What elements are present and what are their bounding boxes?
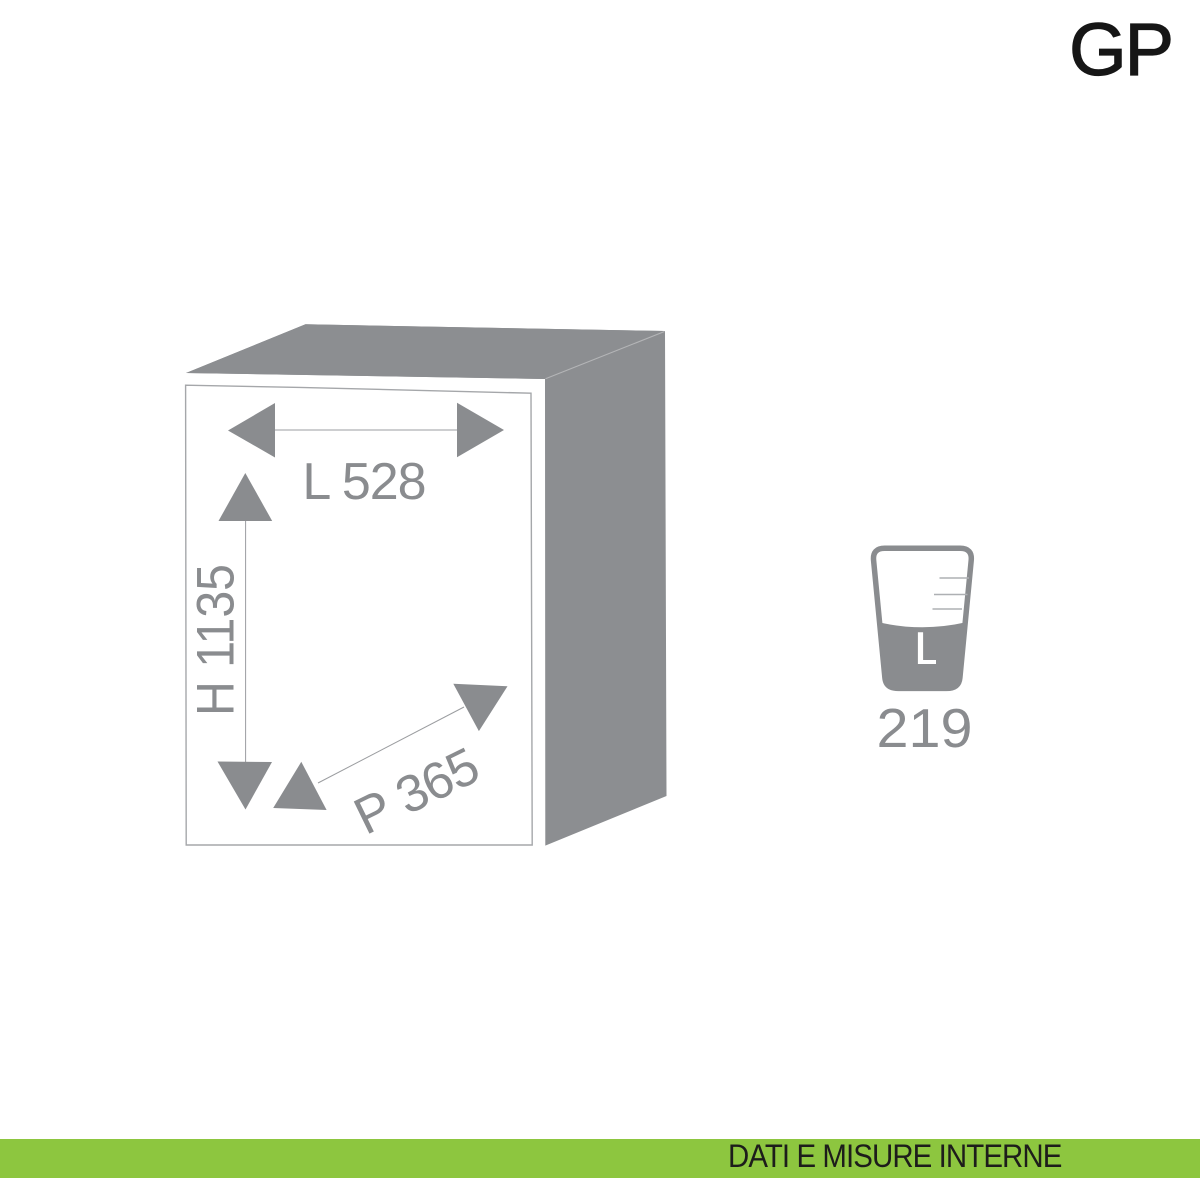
svg-text:219: 219	[877, 697, 973, 759]
svg-text:L 528: L 528	[302, 453, 425, 511]
svg-text:H 1135: H 1135	[187, 564, 246, 716]
